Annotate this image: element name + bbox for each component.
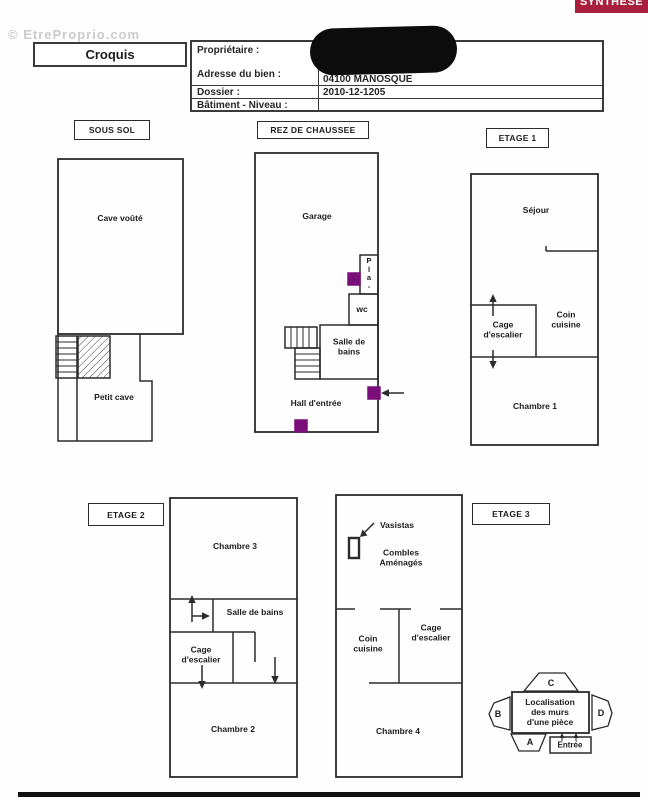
room-label-cave-voute: Cave voûté bbox=[97, 213, 142, 223]
vasistas-window bbox=[349, 538, 359, 558]
room-label-petit-cave: Petit cave bbox=[94, 392, 134, 402]
room-label-cage-escalier-etage1: Cage d'escalier bbox=[484, 321, 523, 340]
floor-tag-etage-1: ETAGE 1 bbox=[486, 128, 549, 148]
croquis-page: © EtreProprio.com SYNTHÈSE Croquis Propr… bbox=[0, 0, 648, 800]
page-title: Croquis bbox=[33, 42, 187, 67]
legend-wall-c-label: C bbox=[548, 678, 555, 688]
purple-marker-placard bbox=[348, 273, 360, 285]
room-label-vasistas: Vasistas bbox=[380, 520, 414, 530]
room-label-chambre-4: Chambre 4 bbox=[376, 726, 420, 736]
legend-entree-label: Entrée bbox=[558, 741, 583, 750]
bottom-bar bbox=[18, 792, 640, 797]
plan-etage-2 bbox=[170, 498, 297, 777]
synthese-badge: SYNTHÈSE bbox=[575, 0, 648, 13]
redacted-owner-info bbox=[309, 25, 457, 76]
room-label-sejour: Séjour bbox=[523, 205, 549, 215]
room-label-salle-de-bains-etage2: Salle de bains bbox=[227, 607, 284, 617]
room-label-hall-entree: Hall d'entrée bbox=[291, 398, 342, 408]
room-label-placard: P l a - bbox=[366, 257, 371, 291]
synthese-badge-label: SYNTHÈSE bbox=[580, 0, 643, 13]
room-label-coin-cuisine-etage3: Coin cuisine bbox=[353, 635, 382, 654]
room-label-garage: Garage bbox=[302, 211, 331, 221]
room-label-chambre-3: Chambre 3 bbox=[213, 541, 257, 551]
room-label-coin-cuisine-etage1: Coin cuisine bbox=[551, 311, 580, 330]
legend-wall-d-label: D bbox=[598, 708, 605, 718]
room-label-chambre-2: Chambre 2 bbox=[211, 724, 255, 734]
room-label-wc: wc bbox=[356, 304, 367, 314]
legend-title: Localisation des murs d'une pièce bbox=[525, 697, 575, 727]
room-label-cage-escalier-etage3: Cage d'escalier bbox=[412, 624, 451, 643]
legend-wall-b-label: B bbox=[495, 709, 502, 719]
purple-marker-entrance bbox=[368, 387, 380, 399]
floor-tag-rez-de-chaussee: REZ DE CHAUSSEE bbox=[257, 121, 369, 139]
legend-wall-a-label: A bbox=[527, 737, 534, 747]
floor-tag-etage-3: ETAGE 3 bbox=[472, 503, 550, 525]
floor-tag-sous-sol: SOUS SOL bbox=[74, 120, 150, 140]
plan-rez-de-chaussee bbox=[255, 153, 404, 432]
purple-marker-hall bbox=[295, 420, 307, 432]
room-label-cage-escalier-etage2: Cage d'escalier bbox=[182, 646, 221, 665]
room-label-combles-amenages: Combles Aménagés bbox=[380, 549, 423, 568]
room-label-chambre-1: Chambre 1 bbox=[513, 401, 557, 411]
room-label-salle-de-bains-rdc: Salle de bains bbox=[333, 338, 365, 357]
floor-tag-etage-2: ETAGE 2 bbox=[88, 503, 164, 526]
vasistas-arrow bbox=[364, 523, 374, 533]
